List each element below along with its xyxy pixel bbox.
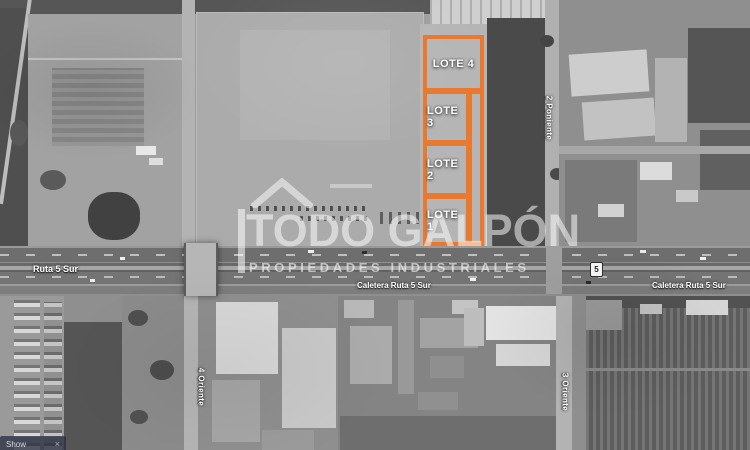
show-overlay-bar[interactable]: Show × [0,436,66,450]
show-overlay-label: Show [6,440,26,449]
road-label-2-poniente: 2 Poniente [545,96,554,140]
road-4-oriente-north [182,0,195,252]
lot-1-outline: LOTE 1 [423,195,470,246]
lot-1-label: LOTE 1 [427,209,466,233]
lot-2-label: LOTE 2 [427,158,466,182]
warehouse [282,328,336,428]
road-label-4-oriente: 4 Oriente [197,368,206,406]
satellite-map: Ruta 5 Sur 5 Caletera Ruta 5 Sur Caleter… [0,0,750,450]
lot-access-strip-outline [468,90,484,246]
warehouse [216,302,278,374]
road-label-caletera-center: Caletera Ruta 5 Sur [357,281,431,290]
overpass-bridge [184,243,218,296]
lot-3-label: LOTE 3 [427,105,466,129]
lot-3-outline: LOTE 3 [423,90,470,144]
route-5-shield: 5 [590,262,603,277]
lot-4-outline: LOTE 4 [423,35,484,92]
road-label-caletera-right: Caletera Ruta 5 Sur [652,281,726,290]
road-label-ruta-5-sur: Ruta 5 Sur [33,264,78,274]
lot-4-label: LOTE 4 [433,58,475,70]
close-icon[interactable]: × [55,439,60,449]
road-label-3-oriente: 3 Oriente [561,373,570,411]
lot-2-outline: LOTE 2 [423,142,470,197]
warehouse [486,306,562,340]
warehouse [582,98,656,141]
warehouse [569,49,650,96]
